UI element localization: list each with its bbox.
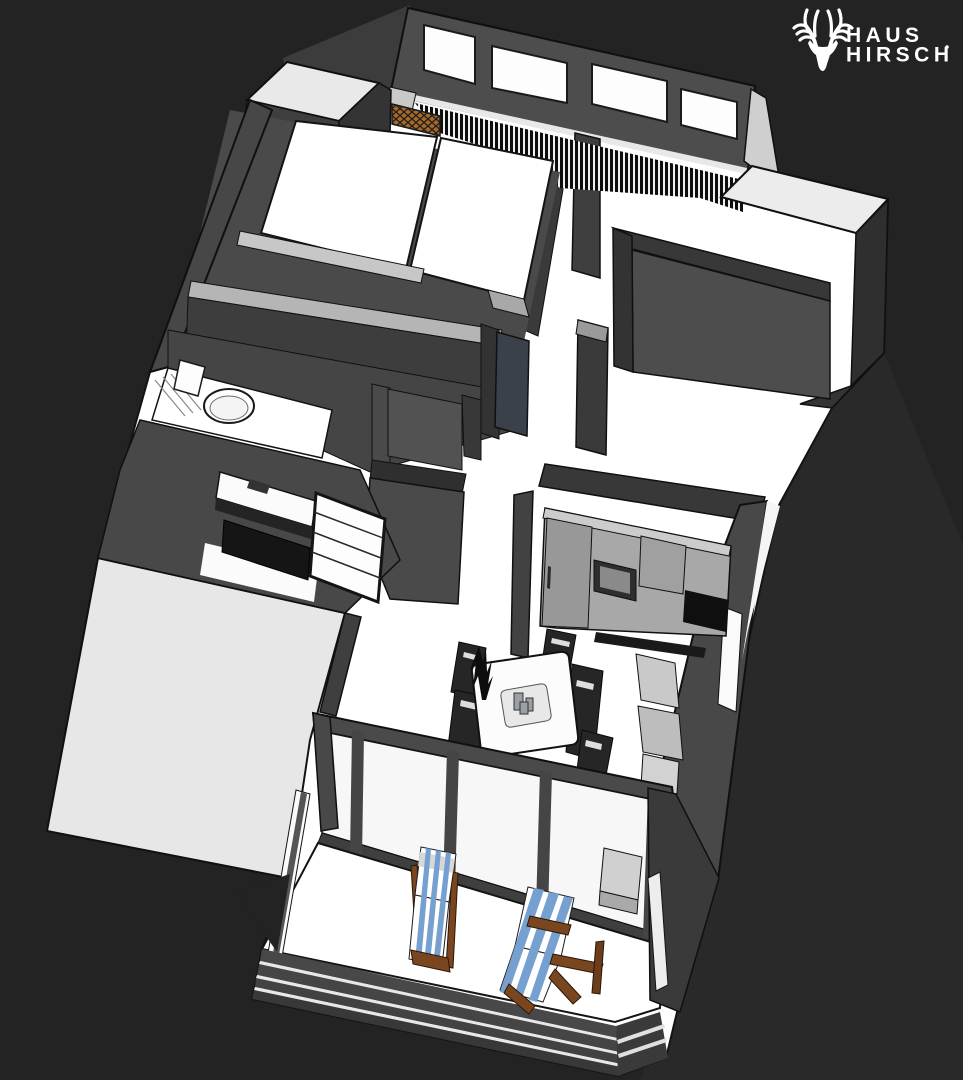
svg-text:HIRSCH: HIRSCH [846, 44, 954, 67]
